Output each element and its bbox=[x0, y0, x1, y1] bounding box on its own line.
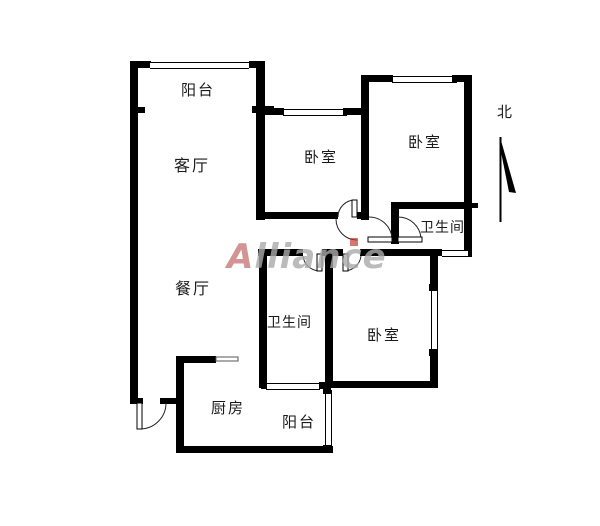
window-cap bbox=[278, 108, 284, 115]
door-arc-bedroom2 bbox=[369, 217, 392, 238]
window-cap bbox=[261, 382, 267, 389]
door-leaf-kitchen bbox=[216, 357, 238, 361]
wall-bedroom3-bottom bbox=[325, 381, 437, 388]
wall-bathroom1-window-cap-right bbox=[468, 249, 472, 256]
wall-balcony-divider-tick bbox=[130, 107, 145, 113]
window-bathroom1 bbox=[442, 250, 468, 257]
window-bedroom2-top bbox=[392, 76, 457, 83]
wall-right-tick bbox=[472, 203, 478, 208]
wall-bedroom1-bottom-left bbox=[256, 212, 338, 219]
window-bedroom3-right bbox=[431, 290, 438, 350]
door-arc-bathroom1 bbox=[398, 217, 421, 238]
room-label-balcony-top: 阳台 bbox=[181, 83, 215, 98]
wall-right-outer bbox=[464, 75, 472, 257]
wall-bottom-outer bbox=[176, 446, 333, 453]
window-cap bbox=[452, 75, 458, 82]
wall-bedroom1-2-divider bbox=[361, 75, 369, 220]
wall-entry-tick-right bbox=[160, 398, 180, 404]
window-balcony-bottom-right bbox=[325, 390, 332, 446]
room-label-bathroom-top: 卫生间 bbox=[420, 221, 465, 235]
door-leaf-entry bbox=[137, 403, 142, 429]
wall-kitchen-top bbox=[176, 356, 216, 363]
room-label-bedroom-top-right: 卧室 bbox=[408, 135, 442, 150]
north-arrow bbox=[500, 137, 516, 222]
window-bedroom1-top bbox=[283, 109, 347, 116]
door-arc-entry bbox=[140, 403, 166, 429]
room-label-bedroom-top-left: 卧室 bbox=[304, 150, 338, 165]
wall-bedroom1-bottom-right bbox=[357, 212, 369, 219]
wall-kitchen-left bbox=[176, 356, 184, 453]
window-balcony-top bbox=[150, 62, 249, 69]
room-label-kitchen: 厨房 bbox=[211, 401, 245, 416]
floorplan-canvas: 阳台 客厅 卧室 卧室 卫生间 餐厅 卫生间 卧室 厨房 阳台 北 Allian… bbox=[0, 0, 600, 526]
wall-bedroom2-bottom bbox=[397, 202, 472, 209]
room-label-bedroom-bottom-right: 卧室 bbox=[367, 328, 401, 343]
room-label-bathroom-bottom: 卫生间 bbox=[267, 316, 312, 330]
window-cap bbox=[343, 108, 348, 115]
room-label-balcony-bottom: 阳台 bbox=[282, 415, 316, 430]
window-bathroom2-bottom bbox=[266, 383, 320, 390]
north-label: 北 bbox=[497, 105, 514, 120]
window-cap bbox=[323, 388, 331, 394]
window-cap bbox=[429, 349, 437, 356]
room-label-living-room: 客厅 bbox=[174, 158, 210, 174]
door-leaf-bathroom1 bbox=[398, 237, 422, 242]
door-arc-bedroom1 bbox=[338, 200, 355, 217]
window-cap bbox=[429, 284, 437, 291]
watermark-flag-icon bbox=[350, 238, 358, 246]
alliance-watermark: Alliance bbox=[227, 240, 387, 274]
watermark-text: Alliance bbox=[227, 237, 387, 277]
window-cap bbox=[145, 61, 150, 68]
wall-bathroom1-stub bbox=[391, 202, 399, 244]
room-label-dining-room: 餐厅 bbox=[175, 281, 211, 297]
window-cap bbox=[387, 75, 393, 82]
wall-entry-tick-left bbox=[130, 398, 143, 404]
window-cap bbox=[323, 445, 331, 451]
wall-step-bedroom1-left bbox=[256, 61, 265, 220]
